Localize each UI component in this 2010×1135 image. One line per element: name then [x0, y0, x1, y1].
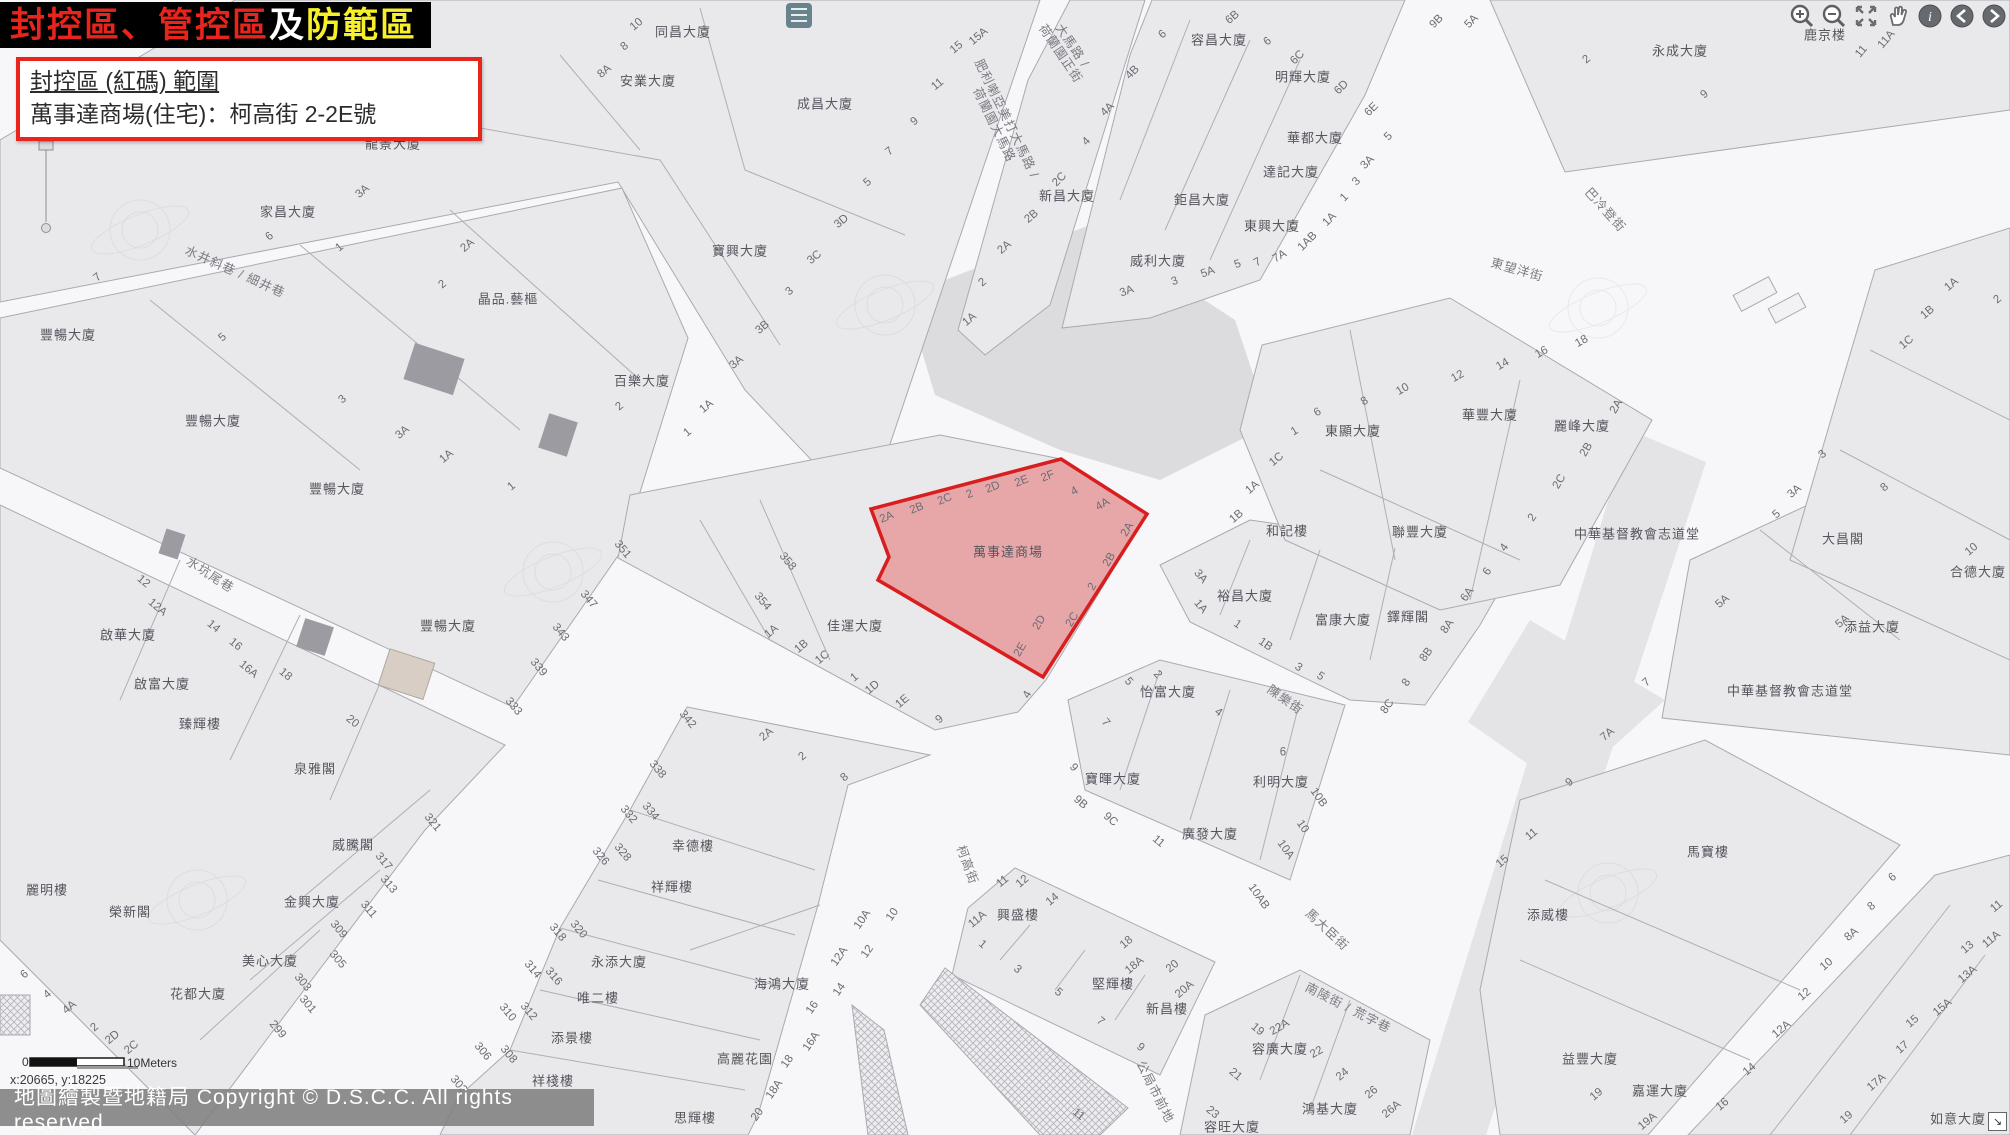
svg-text:0: 0 [22, 1055, 29, 1069]
city-block [1068, 660, 1345, 880]
zoom-in-button[interactable] [1788, 2, 1815, 29]
city-block [1180, 970, 1430, 1135]
base-map [0, 0, 2010, 1135]
next-extent-button[interactable] [1980, 2, 2007, 29]
banner-title-segment: 封控區、管控區 [10, 8, 269, 43]
city-block [440, 707, 930, 1135]
zone-address: 萬事達商場(住宅)：柯高街 2-2E號 [30, 98, 468, 131]
full-extent-button[interactable] [1852, 2, 1879, 29]
copyright-text: 地圖繪製暨地籍局 Copyright © D.S.C.C. All rights… [0, 1081, 594, 1135]
map-canvas[interactable]: 同昌大廈安業大廈成昌大廈寶興大廈龍景大廈家昌大廈晶品.藝樞百樂大廈豐暢大廈豐暢大… [0, 0, 2010, 1135]
title-banner: 封控區、管控區及防範區 [0, 2, 431, 48]
copyright-bar: 地圖繪製暨地籍局 Copyright © D.S.C.C. All rights… [0, 1089, 594, 1126]
collapse-widget[interactable]: ↘ [1988, 1112, 2007, 1131]
zoom-out-button[interactable] [1820, 2, 1847, 29]
map-pin-icon [786, 3, 812, 28]
pan-hand-button[interactable] [1884, 2, 1911, 29]
hatched-area [852, 1005, 908, 1135]
previous-extent-button[interactable] [1948, 2, 1975, 29]
collapse-arrow-icon: ↘ [1993, 1115, 2002, 1128]
identify-info-button[interactable]: i [1916, 2, 1943, 29]
lockdown-info-box: 封控區 (紅碼) 範圍 萬事達商場(住宅)：柯高街 2-2E號 [16, 57, 482, 141]
map-toolbar: i [1788, 2, 2007, 29]
zone-scope-title: 封控區 (紅碼) 範圍 [30, 65, 468, 98]
hatched-area [0, 995, 30, 1035]
banner-title-segment: 防範區 [306, 8, 417, 43]
scale-label: 10Meters [127, 1056, 177, 1070]
svg-text:i: i [1928, 10, 1932, 25]
banner-title-segment: 及 [269, 8, 306, 43]
